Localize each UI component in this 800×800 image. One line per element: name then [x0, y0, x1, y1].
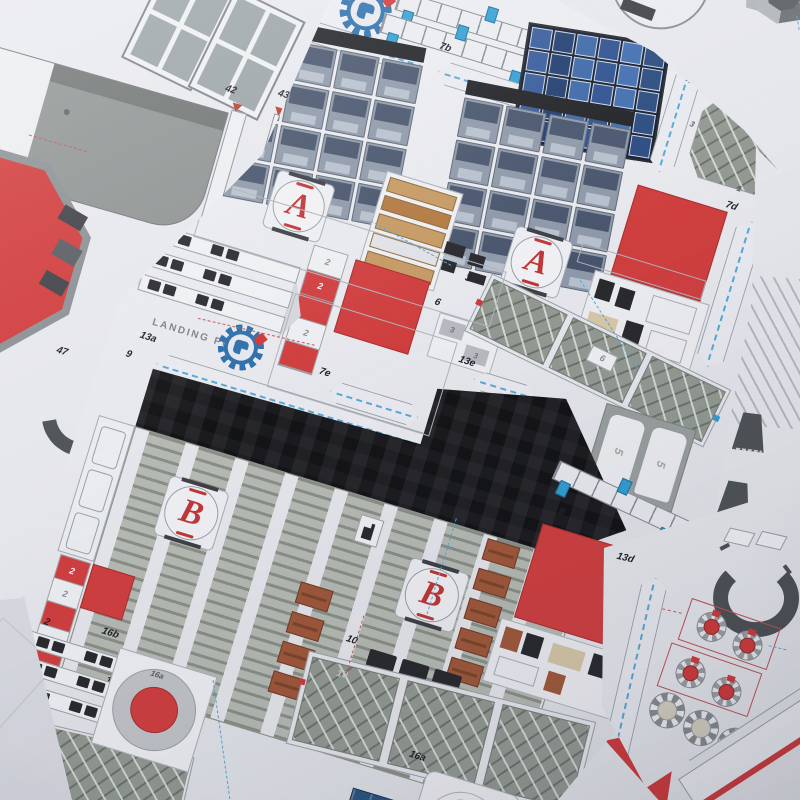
seat-black — [76, 675, 90, 688]
seat-black — [202, 269, 216, 282]
solar-cell — [597, 38, 621, 62]
seat-black — [195, 294, 209, 307]
photo-of-papercraft-sheets: 1 7a 9 7b 7c 4 3 3 3 1 — [0, 0, 800, 800]
panel-cell — [584, 122, 631, 169]
gauge-part — [707, 673, 745, 711]
panel-cell — [367, 100, 414, 146]
seat-brown — [500, 626, 524, 652]
solar-cell — [635, 90, 659, 114]
hole-dot — [63, 108, 70, 115]
panel-cell — [534, 156, 581, 203]
panel-cell — [542, 114, 589, 161]
solar-cell — [525, 49, 549, 73]
brown-tab — [472, 568, 511, 599]
cabinet-outline — [493, 655, 539, 686]
solar-cell — [552, 30, 576, 54]
cabinet-outline — [645, 295, 697, 335]
seat-brown — [543, 671, 566, 695]
edge-label: 3 — [688, 119, 696, 129]
door-number: 5 — [622, 437, 699, 492]
chair-icon — [360, 522, 377, 542]
brown-tab — [286, 611, 325, 642]
seat-black — [36, 636, 50, 649]
circle-part-66: 66 — [603, 0, 717, 37]
solar-cell — [594, 60, 618, 84]
white-tab — [755, 531, 787, 551]
seat-black — [614, 287, 635, 311]
door-outline — [78, 469, 114, 513]
gauge-part — [693, 608, 731, 646]
panel-cell — [576, 164, 623, 211]
dashed-tick-red — [662, 608, 682, 613]
part-label: 13d — [615, 551, 635, 565]
seat-black — [170, 259, 184, 272]
seat-black — [210, 298, 224, 311]
panel-cell — [449, 139, 496, 186]
seat-black — [68, 700, 82, 713]
panel-cell — [499, 106, 546, 153]
part-label: 47 — [55, 345, 70, 358]
seat-black — [84, 705, 98, 718]
gauge-part — [672, 654, 710, 692]
beige-floor — [547, 643, 585, 672]
seat-black — [218, 273, 232, 286]
solar-cell — [574, 34, 598, 58]
solar-cell — [639, 67, 663, 91]
panel-cell — [457, 97, 504, 144]
seat-black — [521, 633, 545, 659]
helipad-circle: B — [158, 480, 225, 547]
solar-cell — [571, 56, 595, 80]
panel-cell — [316, 133, 363, 179]
seat-black — [51, 641, 65, 654]
panel-cell — [333, 50, 380, 96]
solar-cell — [628, 135, 652, 159]
red-arrow-tab — [229, 102, 242, 117]
solar-cell — [616, 64, 640, 88]
seat-black — [99, 655, 113, 668]
brown-tab — [454, 627, 493, 658]
pad-letter: B — [159, 481, 224, 546]
seat-black — [162, 284, 176, 297]
seat-black — [594, 278, 615, 302]
dark-band — [620, 0, 656, 21]
solar-cell — [613, 86, 637, 110]
solar-cell — [548, 53, 572, 77]
solar-cell — [529, 27, 553, 51]
panel-cell — [491, 147, 538, 194]
blue-tab — [484, 6, 499, 24]
spike — [719, 543, 730, 551]
part-label: 9 — [124, 349, 133, 361]
panel-cell — [324, 91, 371, 137]
door-outline — [91, 426, 127, 470]
seat-black — [43, 666, 57, 679]
seat-black — [91, 680, 105, 693]
panel-cell — [273, 124, 320, 170]
part-label: 13a — [138, 330, 158, 345]
panel-cell — [376, 58, 423, 104]
solar-cell — [632, 112, 656, 136]
solar-cell — [590, 83, 614, 107]
truss-cell — [387, 680, 495, 785]
seat-black — [147, 279, 161, 292]
seat-black — [84, 651, 98, 664]
door-outline — [65, 511, 101, 555]
gem-part-70 — [750, 0, 800, 27]
blue-tick — [712, 414, 720, 422]
gauge-part — [728, 627, 766, 665]
brown-tab — [463, 597, 502, 628]
